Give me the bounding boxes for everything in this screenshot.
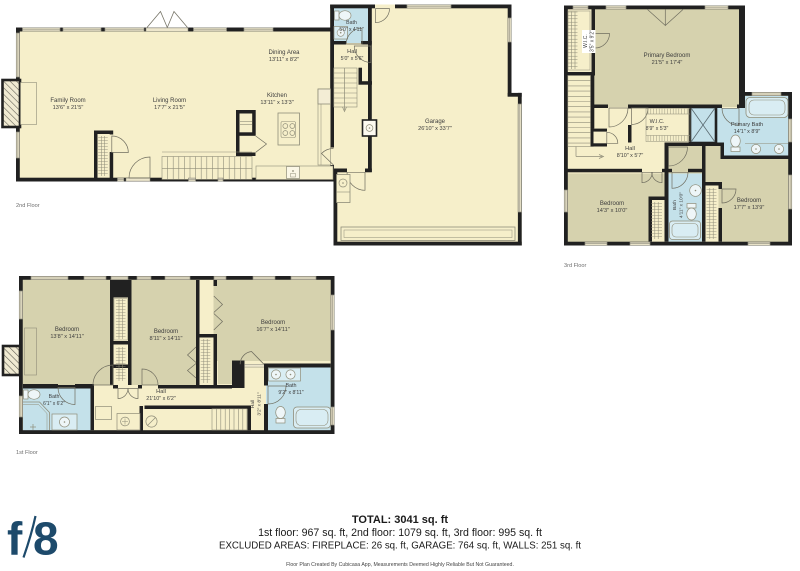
svg-text:Hall: Hall	[156, 389, 166, 395]
svg-text:8'9" x 5'3": 8'9" x 5'3"	[646, 126, 669, 132]
svg-text:W.I.C.: W.I.C.	[650, 119, 665, 125]
svg-text:Hall: Hall	[625, 146, 635, 152]
svg-text:21'10" x 6'2": 21'10" x 6'2"	[146, 396, 176, 402]
svg-text:13'8" x 14'11": 13'8" x 14'11"	[50, 334, 83, 340]
svg-text:Bedroom: Bedroom	[600, 201, 624, 207]
svg-text:14'3" x 10'0": 14'3" x 10'0"	[597, 208, 628, 214]
svg-text:Dining Area: Dining Area	[268, 50, 300, 56]
svg-text:f: f	[7, 513, 23, 565]
svg-text:4'11" x 10'0": 4'11" x 10'0"	[679, 192, 685, 218]
svg-text:17'7" x 13'9": 17'7" x 13'9"	[734, 205, 765, 211]
svg-text:16'7" x 14'11": 16'7" x 14'11"	[256, 327, 289, 333]
svg-text:Primary Bedroom: Primary Bedroom	[644, 53, 691, 59]
svg-text:Bath: Bath	[346, 20, 357, 26]
svg-text:13'11" x 8'2": 13'11" x 8'2"	[269, 57, 299, 63]
svg-text:1st floor: 967 sq. ft, 2nd flo: 1st floor: 967 sq. ft, 2nd floor: 1079 s…	[258, 527, 542, 539]
svg-text:Bedroom: Bedroom	[154, 329, 178, 335]
svg-text:13'6" x 21'5": 13'6" x 21'5"	[53, 105, 84, 111]
svg-text:Bedroom: Bedroom	[55, 327, 79, 333]
svg-text:Family Room: Family Room	[50, 98, 85, 104]
svg-text:3'5" x 9'2": 3'5" x 9'2"	[590, 30, 596, 52]
svg-text:9'2" x 8'11": 9'2" x 8'11"	[278, 390, 303, 396]
svg-text:26'10" x 33'7": 26'10" x 33'7"	[418, 126, 452, 132]
svg-text:8'11" x 14'11": 8'11" x 14'11"	[150, 336, 183, 342]
svg-text:Floor Plan Created By Cubicasa: Floor Plan Created By Cubicasa App, Meas…	[286, 562, 514, 568]
svg-text:Garage: Garage	[425, 119, 446, 125]
svg-text:W.I.C.: W.I.C.	[583, 34, 589, 48]
svg-text:TOTAL: 3041 sq. ft: TOTAL: 3041 sq. ft	[352, 514, 449, 526]
svg-text:21'5" x 17'4": 21'5" x 17'4"	[652, 60, 683, 66]
svg-text:8'10" x 5'7": 8'10" x 5'7"	[617, 153, 644, 159]
svg-text:5'0" x 4'11": 5'0" x 4'11"	[339, 27, 363, 33]
svg-text:Primary Bath: Primary Bath	[731, 122, 763, 128]
svg-text:6'1" x 6'2": 6'1" x 6'2"	[43, 401, 65, 407]
svg-text:Bedroom: Bedroom	[737, 198, 761, 204]
svg-text:Hall: Hall	[250, 400, 256, 408]
svg-text:Kitchen: Kitchen	[267, 93, 287, 99]
svg-text:2nd Floor: 2nd Floor	[16, 203, 40, 209]
svg-text:1st Floor: 1st Floor	[16, 450, 38, 456]
svg-text:13'11" x 13'3": 13'11" x 13'3"	[260, 100, 293, 106]
svg-text:8: 8	[33, 513, 59, 565]
svg-text:5'0" x 5'6": 5'0" x 5'6"	[341, 56, 364, 62]
svg-text:14'1" x 8'9": 14'1" x 8'9"	[734, 129, 761, 135]
svg-text:3'2" x 8'11": 3'2" x 8'11"	[257, 392, 263, 416]
svg-text:17'7" x 21'5": 17'7" x 21'5"	[154, 105, 185, 111]
svg-text:Bath: Bath	[285, 383, 296, 389]
svg-text:EXCLUDED AREAS: FIREPLACE: 26: EXCLUDED AREAS: FIREPLACE: 26 sq. ft, GA…	[219, 541, 581, 552]
svg-text:Hall: Hall	[347, 49, 357, 55]
svg-text:Living Room: Living Room	[153, 98, 186, 104]
svg-text:Bath: Bath	[49, 394, 60, 400]
svg-text:3rd Floor: 3rd Floor	[564, 263, 587, 269]
svg-text:Bath: Bath	[672, 200, 678, 210]
svg-text:Bedroom: Bedroom	[261, 320, 285, 326]
